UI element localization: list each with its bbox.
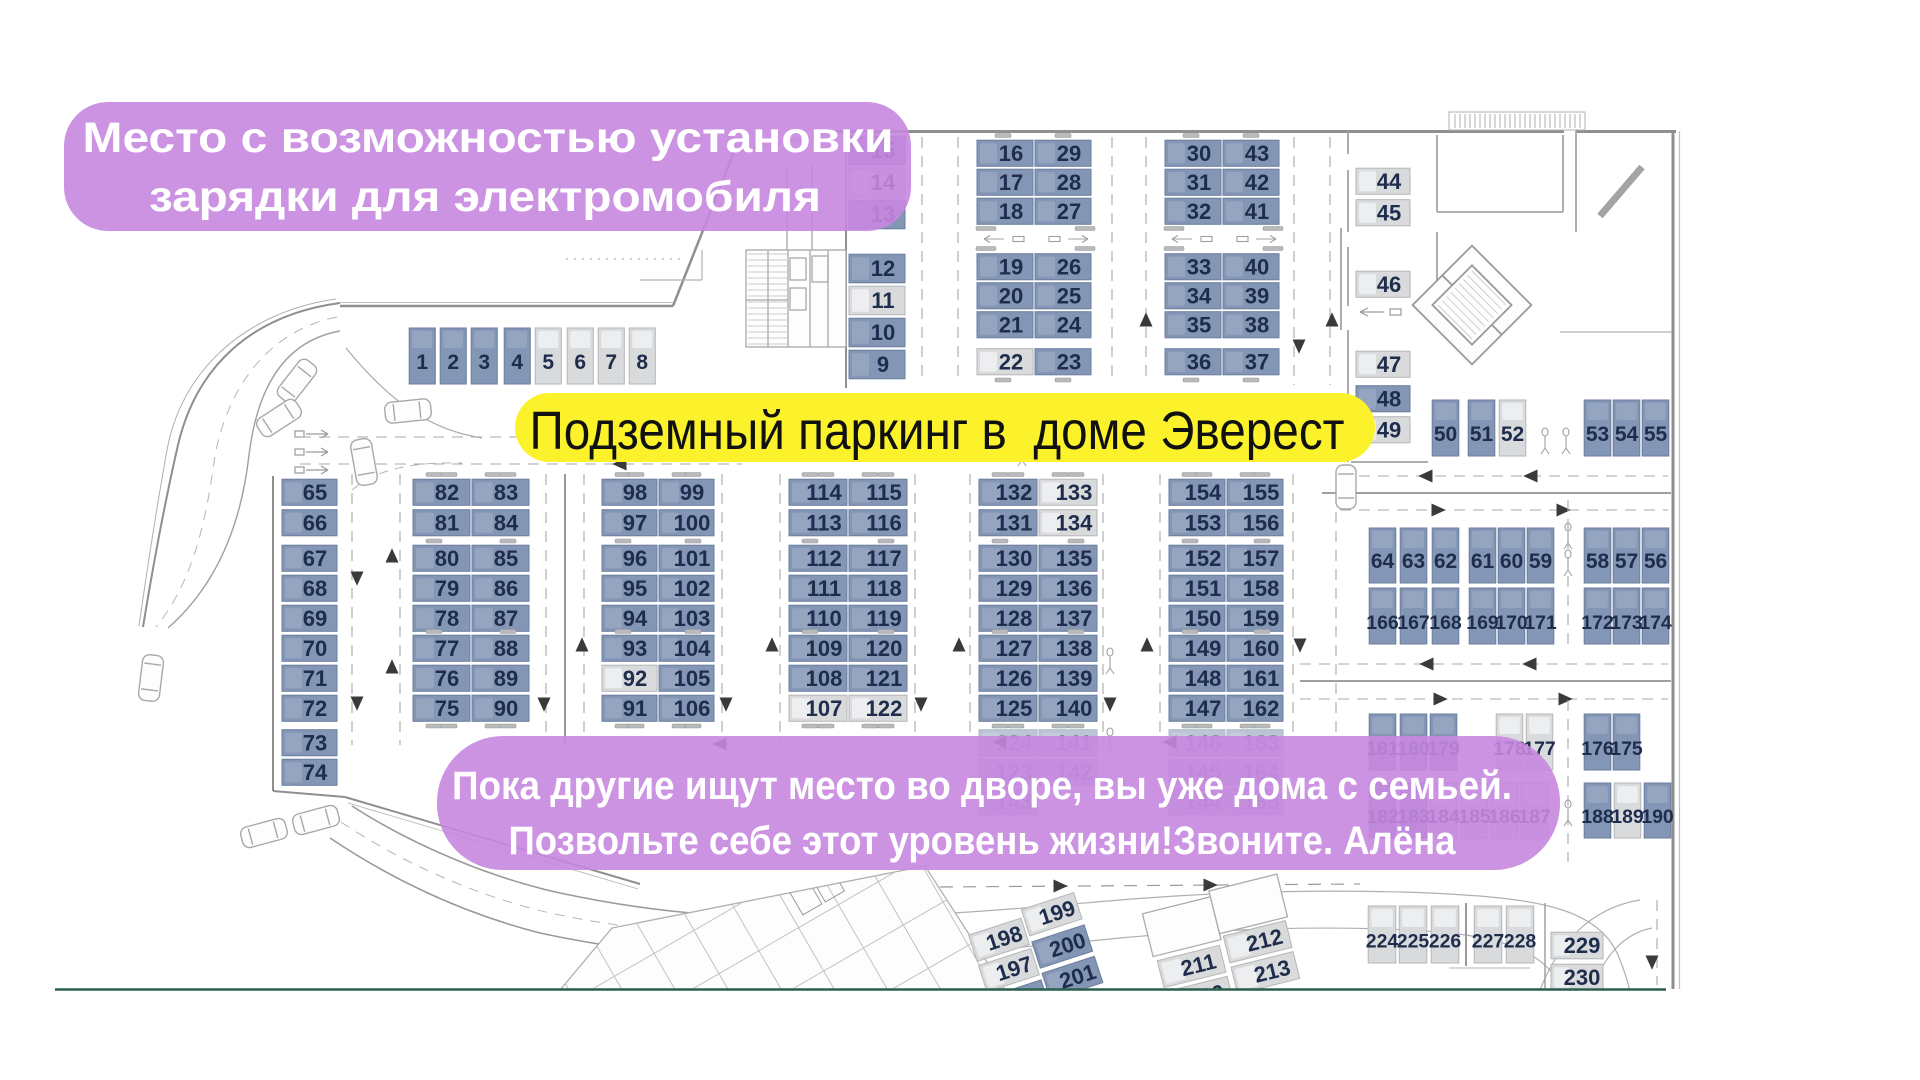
svg-text:89: 89 <box>494 666 518 691</box>
svg-text:20: 20 <box>999 283 1023 308</box>
svg-text:98: 98 <box>623 480 647 505</box>
svg-text:5: 5 <box>542 351 554 374</box>
svg-text:86: 86 <box>494 576 518 601</box>
svg-text:10: 10 <box>871 320 895 345</box>
svg-text:18: 18 <box>999 199 1023 224</box>
svg-text:65: 65 <box>303 480 327 505</box>
svg-text:27: 27 <box>1057 199 1081 224</box>
svg-text:94: 94 <box>623 606 648 631</box>
svg-text:46: 46 <box>1377 272 1401 297</box>
svg-text:83: 83 <box>494 480 518 505</box>
svg-text:110: 110 <box>806 606 842 631</box>
svg-text:230: 230 <box>1564 965 1601 990</box>
svg-text:120: 120 <box>866 636 903 661</box>
svg-text:52: 52 <box>1501 423 1524 446</box>
svg-text:117: 117 <box>866 546 902 571</box>
svg-text:53: 53 <box>1586 423 1609 446</box>
svg-text:17: 17 <box>999 170 1023 195</box>
svg-text:109: 109 <box>806 636 843 661</box>
svg-text:7: 7 <box>605 351 617 374</box>
svg-text:108: 108 <box>806 666 843 691</box>
svg-text:6: 6 <box>574 351 586 374</box>
svg-text:154: 154 <box>1185 480 1222 505</box>
svg-text:78: 78 <box>435 606 459 631</box>
svg-text:59: 59 <box>1529 550 1552 573</box>
svg-text:112: 112 <box>806 546 842 571</box>
svg-text:125: 125 <box>996 696 1033 721</box>
svg-text:160: 160 <box>1243 636 1280 661</box>
svg-text:155: 155 <box>1243 480 1280 505</box>
svg-text:190: 190 <box>1641 806 1674 828</box>
svg-text:171: 171 <box>1524 612 1557 634</box>
svg-text:45: 45 <box>1377 200 1401 225</box>
svg-text:57: 57 <box>1615 550 1638 573</box>
svg-text:21: 21 <box>999 312 1023 337</box>
svg-text:50: 50 <box>1434 423 1457 446</box>
svg-text:101: 101 <box>674 546 711 571</box>
svg-text:73: 73 <box>303 730 327 755</box>
svg-text:104: 104 <box>674 636 711 661</box>
svg-text:76: 76 <box>435 666 459 691</box>
svg-text:118: 118 <box>866 576 902 601</box>
svg-text:114: 114 <box>806 480 842 505</box>
svg-text:115: 115 <box>866 480 902 505</box>
svg-text:47: 47 <box>1377 352 1401 377</box>
svg-text:91: 91 <box>623 696 647 721</box>
svg-text:149: 149 <box>1185 636 1222 661</box>
svg-text:68: 68 <box>303 576 327 601</box>
svg-text:158: 158 <box>1243 576 1280 601</box>
svg-text:103: 103 <box>674 606 711 631</box>
svg-text:93: 93 <box>623 636 647 661</box>
svg-text:43: 43 <box>1245 141 1269 166</box>
svg-text:156: 156 <box>1243 510 1280 535</box>
svg-text:135: 135 <box>1056 546 1093 571</box>
svg-text:56: 56 <box>1644 550 1667 573</box>
svg-text:58: 58 <box>1586 550 1610 573</box>
svg-text:176: 176 <box>1581 738 1614 760</box>
svg-text:105: 105 <box>674 666 711 691</box>
svg-text:87: 87 <box>494 606 518 631</box>
svg-text:Подземный паркинг в доме Эвер: Подземный паркинг в доме Эверест <box>530 401 1345 461</box>
svg-text:8: 8 <box>636 351 648 374</box>
svg-text:229: 229 <box>1564 933 1601 958</box>
svg-text:64: 64 <box>1371 550 1395 573</box>
svg-text:111: 111 <box>807 576 841 601</box>
svg-text:44: 44 <box>1377 169 1402 194</box>
svg-text:95: 95 <box>623 576 647 601</box>
svg-text:48: 48 <box>1377 386 1401 411</box>
svg-text:34: 34 <box>1187 283 1212 308</box>
svg-text:40: 40 <box>1245 254 1269 279</box>
svg-text:30: 30 <box>1187 141 1211 166</box>
svg-text:51: 51 <box>1470 423 1494 446</box>
svg-text:169: 169 <box>1466 612 1499 634</box>
svg-text:134: 134 <box>1056 510 1093 535</box>
svg-text:54: 54 <box>1615 423 1639 446</box>
svg-text:63: 63 <box>1402 550 1425 573</box>
svg-text:1: 1 <box>416 351 428 374</box>
svg-text:31: 31 <box>1187 170 1211 195</box>
svg-text:159: 159 <box>1243 606 1280 631</box>
svg-text:37: 37 <box>1245 349 1269 374</box>
svg-text:130: 130 <box>996 546 1033 571</box>
svg-text:102: 102 <box>674 576 711 601</box>
svg-text:79: 79 <box>435 576 459 601</box>
svg-text:113: 113 <box>806 510 842 535</box>
svg-text:133: 133 <box>1056 480 1093 505</box>
svg-text:42: 42 <box>1245 170 1269 195</box>
svg-text:132: 132 <box>996 480 1033 505</box>
svg-text:140: 140 <box>1056 696 1093 721</box>
svg-text:126: 126 <box>996 666 1033 691</box>
svg-text:22: 22 <box>999 349 1023 374</box>
svg-text:174: 174 <box>1639 612 1672 634</box>
svg-text:67: 67 <box>303 546 327 571</box>
svg-text:119: 119 <box>866 606 902 631</box>
svg-text:80: 80 <box>435 546 459 571</box>
svg-text:172: 172 <box>1581 612 1614 634</box>
svg-text:228: 228 <box>1504 930 1537 952</box>
svg-text:66: 66 <box>303 510 327 535</box>
svg-text:127: 127 <box>996 636 1033 661</box>
svg-text:97: 97 <box>623 510 647 535</box>
svg-text:60: 60 <box>1500 550 1523 573</box>
svg-text:69: 69 <box>303 606 327 631</box>
svg-text:96: 96 <box>623 546 647 571</box>
svg-text:150: 150 <box>1185 606 1222 631</box>
svg-text:19: 19 <box>999 254 1023 279</box>
svg-text:162: 162 <box>1243 696 1280 721</box>
svg-text:138: 138 <box>1056 636 1093 661</box>
svg-text:23: 23 <box>1057 349 1081 374</box>
svg-text:227: 227 <box>1472 930 1505 952</box>
svg-text:32: 32 <box>1187 199 1211 224</box>
svg-text:74: 74 <box>303 760 328 785</box>
svg-text:4: 4 <box>511 351 523 374</box>
svg-text:153: 153 <box>1185 510 1222 535</box>
svg-text:82: 82 <box>435 480 459 505</box>
svg-text:35: 35 <box>1187 312 1211 337</box>
svg-text:137: 137 <box>1056 606 1093 631</box>
svg-text:167: 167 <box>1397 612 1430 634</box>
svg-text:88: 88 <box>494 636 518 661</box>
svg-text:41: 41 <box>1245 199 1269 224</box>
svg-text:136: 136 <box>1056 576 1093 601</box>
svg-text:26: 26 <box>1057 254 1081 279</box>
svg-text:25: 25 <box>1057 283 1081 308</box>
svg-text:129: 129 <box>996 576 1033 601</box>
svg-text:9: 9 <box>877 352 889 377</box>
svg-text:72: 72 <box>303 696 327 721</box>
svg-text:107: 107 <box>806 696 843 721</box>
svg-text:77: 77 <box>435 636 459 661</box>
svg-text:Позвольте себе этот уровень жи: Позвольте себе этот уровень жизни!Звонит… <box>509 819 1457 863</box>
svg-text:139: 139 <box>1056 666 1093 691</box>
svg-text:12: 12 <box>871 256 895 281</box>
svg-text:157: 157 <box>1243 546 1280 571</box>
svg-text:128: 128 <box>996 606 1033 631</box>
svg-text:16: 16 <box>999 141 1023 166</box>
svg-text:39: 39 <box>1245 283 1269 308</box>
svg-text:Место с возможностью установки: Место с возможностью установки <box>83 114 894 162</box>
svg-text:166: 166 <box>1366 612 1399 634</box>
svg-text:зарядки для электромобиля: зарядки для электромобиля <box>149 173 821 221</box>
svg-text:170: 170 <box>1495 612 1528 634</box>
svg-text:116: 116 <box>866 510 902 535</box>
svg-text:75: 75 <box>435 696 459 721</box>
svg-text:225: 225 <box>1397 930 1430 952</box>
svg-text:99: 99 <box>680 480 704 505</box>
svg-text:188: 188 <box>1581 806 1614 828</box>
svg-text:90: 90 <box>494 696 518 721</box>
svg-text:62: 62 <box>1434 550 1457 573</box>
svg-text:84: 84 <box>494 510 519 535</box>
svg-text:81: 81 <box>435 510 459 535</box>
svg-text:100: 100 <box>674 510 711 535</box>
svg-text:70: 70 <box>303 636 327 661</box>
svg-text:168: 168 <box>1429 612 1462 634</box>
svg-text:24: 24 <box>1057 312 1082 337</box>
svg-text:36: 36 <box>1187 349 1211 374</box>
svg-text:38: 38 <box>1245 312 1269 337</box>
svg-text:2: 2 <box>447 351 459 374</box>
svg-text:161: 161 <box>1243 666 1280 691</box>
svg-text:175: 175 <box>1610 738 1643 760</box>
svg-text:Пока другие ищут место во двор: Пока другие ищут место во дворе, вы уже … <box>452 764 1512 808</box>
svg-text:29: 29 <box>1057 141 1081 166</box>
svg-text:28: 28 <box>1057 170 1081 195</box>
svg-text:121: 121 <box>866 666 903 691</box>
svg-text:147: 147 <box>1185 696 1222 721</box>
svg-text:151: 151 <box>1185 576 1222 601</box>
svg-text:85: 85 <box>494 546 518 571</box>
svg-text:122: 122 <box>866 696 903 721</box>
svg-text:33: 33 <box>1187 254 1211 279</box>
svg-text:148: 148 <box>1185 666 1222 691</box>
svg-text:189: 189 <box>1611 806 1644 828</box>
svg-text:61: 61 <box>1471 550 1495 573</box>
svg-text:152: 152 <box>1185 546 1222 571</box>
svg-text:131: 131 <box>996 510 1033 535</box>
svg-text:11: 11 <box>871 288 894 313</box>
svg-text:92: 92 <box>623 666 647 691</box>
svg-text:71: 71 <box>303 666 327 691</box>
svg-text:106: 106 <box>674 696 711 721</box>
svg-text:224: 224 <box>1366 930 1399 952</box>
svg-text:3: 3 <box>478 351 490 374</box>
svg-text:173: 173 <box>1610 612 1643 634</box>
svg-text:226: 226 <box>1429 930 1462 952</box>
svg-text:49: 49 <box>1377 417 1401 442</box>
svg-text:55: 55 <box>1644 423 1668 446</box>
